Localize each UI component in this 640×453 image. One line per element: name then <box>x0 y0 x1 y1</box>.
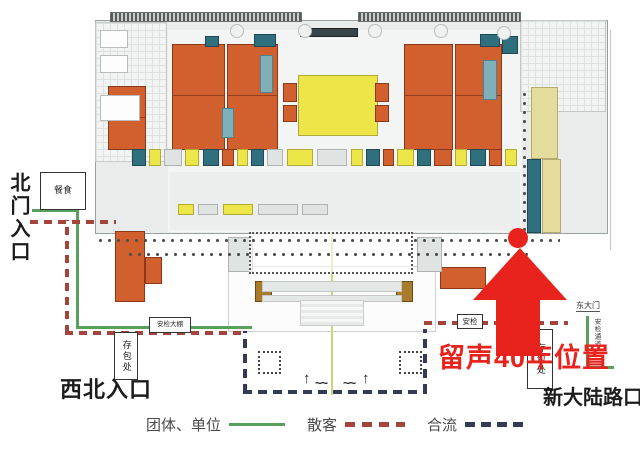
plan-room <box>531 87 558 159</box>
flow-arrow-icon: ↑ <box>362 370 370 387</box>
merged-route-line <box>243 390 427 394</box>
legend-merged-line <box>465 422 527 427</box>
room-divider <box>173 95 224 96</box>
plan-room <box>287 149 313 166</box>
plan-room <box>317 149 347 166</box>
plan-room <box>149 149 161 166</box>
plan-room <box>198 204 218 215</box>
tree-icon <box>298 24 312 38</box>
roof-strip-right <box>358 12 521 22</box>
plan-room <box>302 204 328 215</box>
plan-room <box>164 149 182 166</box>
plan-room <box>434 149 452 166</box>
merged-route-line <box>423 329 427 393</box>
food-box: 餐食 <box>40 172 86 210</box>
plan-room <box>223 204 253 215</box>
plan-room <box>397 149 414 166</box>
wave-mark: ~~ <box>315 376 327 390</box>
column-row <box>128 252 532 257</box>
wave-mark: ~~ <box>343 376 355 390</box>
legend-group-label: 团体、单位 <box>146 414 221 435</box>
venue-map-page: ↑ ~~ ~~ ↑ 餐食 安检大棚 存包处 安检 存包处 东大门 安检通道 留声… <box>0 0 640 453</box>
plan-room <box>203 149 219 166</box>
plan-room <box>205 36 219 47</box>
plan-room <box>366 149 380 166</box>
column-row <box>98 238 560 243</box>
plan-room <box>258 204 298 215</box>
individual-route-line <box>30 220 116 224</box>
plan-right-edge <box>610 30 613 250</box>
plan-room <box>527 159 541 233</box>
plan-room <box>542 159 561 233</box>
plan-room <box>251 149 264 166</box>
room-divider <box>228 95 277 96</box>
plan-room <box>185 149 199 166</box>
group-route-line <box>76 209 79 329</box>
individual-route-line <box>65 220 69 333</box>
plan-room <box>470 149 486 166</box>
tree-icon <box>230 24 244 38</box>
tree-icon <box>368 24 382 38</box>
plan-room <box>417 149 431 166</box>
plan-room <box>172 44 225 150</box>
plan-room <box>132 149 146 166</box>
legend: 团体、单位 散客 合流 <box>146 414 527 435</box>
northwest-entrance-label: 西北入口 <box>60 372 152 404</box>
plan-room <box>483 60 497 100</box>
position-dot <box>508 228 528 248</box>
plan-room <box>237 149 248 166</box>
plan-room <box>505 149 517 166</box>
security-box: 安检 <box>457 314 483 329</box>
plan-room <box>455 149 467 166</box>
plan-room <box>100 55 128 73</box>
tree-icon <box>434 24 448 38</box>
security-tent-box: 安检大棚 <box>149 317 191 333</box>
plan-room <box>178 204 194 215</box>
plan-room <box>267 149 283 166</box>
room-divider <box>405 95 452 96</box>
east-gate-label: 东大门 <box>576 300 600 312</box>
legend-merged-label: 合流 <box>427 414 457 435</box>
plan-room <box>399 351 422 374</box>
highlight-position-label: 留声40年位置 <box>438 336 610 375</box>
position-arrow-icon <box>473 248 567 300</box>
merged-route-line <box>243 331 247 393</box>
plan-room <box>254 34 276 47</box>
north-entrance-label: 北门入口 <box>4 172 33 264</box>
plan-room <box>375 83 389 102</box>
plan-room <box>489 149 502 166</box>
plan-room <box>100 95 140 121</box>
column-col <box>522 92 527 234</box>
tree-icon <box>497 26 511 40</box>
plan-room <box>300 300 364 326</box>
plan-room <box>260 55 273 93</box>
plan-room <box>298 75 378 136</box>
flow-arrow-icon: ↑ <box>303 370 311 387</box>
plan-room <box>283 105 297 122</box>
plan-room <box>375 105 389 122</box>
plan-room <box>145 257 162 284</box>
lobby-band <box>170 172 520 230</box>
plan-room <box>283 83 297 102</box>
plan-room <box>258 351 281 374</box>
plan-room <box>222 149 234 166</box>
roof-strip-left <box>110 12 302 22</box>
legend-group-line <box>229 423 285 426</box>
legend-individual-label: 散客 <box>307 414 337 435</box>
plan-room <box>383 149 394 166</box>
xindalu-corner-label: 新大陆路口 <box>543 381 640 410</box>
plan-room <box>262 281 402 292</box>
plan-room <box>100 30 128 48</box>
plan-room <box>404 44 453 150</box>
legend-individual-line <box>345 422 405 427</box>
plan-room <box>351 149 363 166</box>
plan-room <box>222 108 234 138</box>
